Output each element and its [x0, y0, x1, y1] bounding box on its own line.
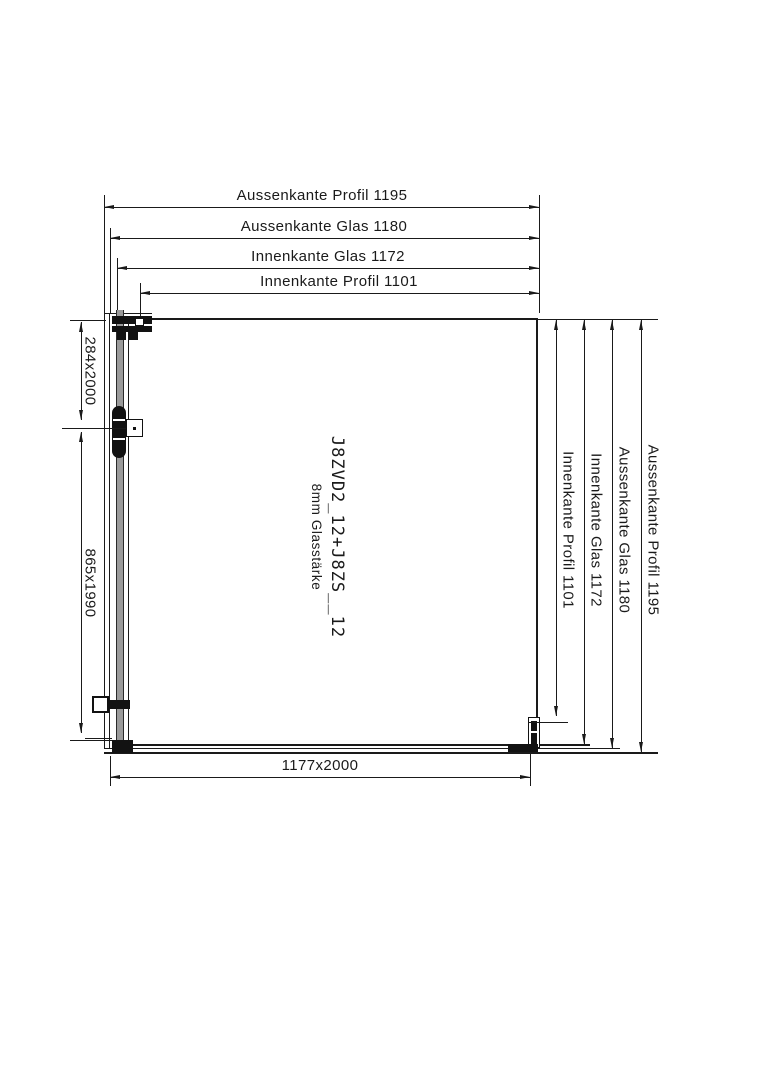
arrow-up-icon [79, 432, 83, 442]
product-annotation: J8ZVD2_12+J8ZS__12 8mm Glasstärke [309, 436, 347, 638]
ext-line [530, 754, 531, 786]
arrow-left-icon [110, 236, 120, 240]
arrow-down-icon [79, 723, 83, 733]
dim-label-1177x2000: 1177x2000 [282, 757, 359, 774]
top-hinge-screw [117, 332, 126, 340]
arrow-up-icon [610, 320, 614, 330]
technical-drawing-canvas: Aussenkante Profil 1195 Aussenkante Glas… [0, 0, 763, 1080]
corner-bracket-block [531, 733, 537, 744]
dim-line-top-2 [110, 238, 539, 239]
profile-bottom-outer-line [104, 752, 658, 754]
dim-line-top-1 [104, 207, 539, 208]
dim-line-right-2 [584, 320, 585, 744]
ext-line [117, 258, 118, 313]
arrow-up-icon [79, 322, 83, 332]
dim-line-right-4 [641, 320, 642, 752]
ext-line-bracket-top [528, 722, 568, 723]
ext-line [70, 320, 106, 321]
glass-panel-top-edge [135, 318, 537, 320]
hinge-slot [113, 419, 125, 421]
dim-label-aussenkante-profil-right: Aussenkante Profil 1195 [645, 445, 662, 616]
ext-line [104, 195, 105, 313]
glass-panel-right-edge [536, 318, 538, 745]
arrow-right-icon [529, 205, 539, 209]
glass-thickness-text: 8mm Glasstärke [309, 436, 324, 638]
arrow-down-icon [582, 734, 586, 744]
dim-label-aussenkante-profil-top: Aussenkante Profil 1195 [237, 187, 408, 204]
door-inner-line [128, 318, 129, 745]
ext-line [539, 195, 540, 313]
door-knob [92, 696, 109, 713]
profile-top-line [104, 313, 152, 314]
dim-line-top-3 [117, 268, 539, 269]
corner-bracket-base [508, 744, 538, 752]
arrow-left-icon [104, 205, 114, 209]
door-glass-edge [116, 310, 124, 745]
product-code-text: J8ZVD2_12+J8ZS__12 [327, 436, 347, 638]
wall-profile-outer-line [104, 313, 105, 749]
dim-label-aussenkante-glas-top: Aussenkante Glas 1180 [241, 218, 408, 235]
dim-line-right-1 [556, 320, 557, 716]
middle-hinge-body [112, 406, 126, 458]
dim-label-innenkante-profil-right: Innenkante Profil 1101 [560, 451, 577, 609]
door-knob-stem [109, 700, 130, 709]
arrow-right-icon [520, 775, 530, 779]
ext-line [70, 740, 112, 741]
arrow-left-icon [117, 266, 127, 270]
hinge-plate-dot [133, 427, 136, 430]
arrow-down-icon [79, 410, 83, 420]
ext-line [62, 428, 126, 429]
top-corner-fitting [135, 318, 144, 326]
arrow-right-icon [529, 236, 539, 240]
ext-line [85, 738, 112, 739]
dim-label-innenkante-profil-top: Innenkante Profil 1101 [260, 273, 418, 290]
arrow-down-icon [610, 738, 614, 748]
arrow-left-icon [110, 775, 120, 779]
wall-profile-inner-line [109, 313, 110, 749]
dim-label-innenkante-glas-right: Innenkante Glas 1172 [588, 453, 605, 607]
dim-label-innenkante-glas-top: Innenkante Glas 1172 [251, 248, 405, 265]
dim-line-right-3 [612, 320, 613, 748]
arrow-left-icon [140, 291, 150, 295]
arrow-right-icon [529, 266, 539, 270]
arrow-up-icon [639, 320, 643, 330]
arrow-right-icon [529, 291, 539, 295]
ext-line [110, 756, 111, 786]
hinge-slot [113, 438, 125, 440]
bottom-door-fitting [112, 740, 133, 753]
dim-line-top-4 [140, 293, 539, 294]
arrow-down-icon [554, 706, 558, 716]
profile-bottom-line [104, 748, 620, 749]
arrow-up-icon [554, 320, 558, 330]
dim-label-865x1990: 865x1990 [82, 548, 99, 617]
top-hinge-bracket [112, 316, 152, 324]
dim-label-aussenkante-glas-right: Aussenkante Glas 1180 [616, 447, 633, 614]
dim-label-284x2000: 284x2000 [82, 336, 99, 405]
top-hinge-screw [129, 332, 138, 340]
arrow-down-icon [639, 742, 643, 752]
dim-line-bottom [110, 777, 530, 778]
ext-line [110, 228, 111, 313]
arrow-up-icon [582, 320, 586, 330]
